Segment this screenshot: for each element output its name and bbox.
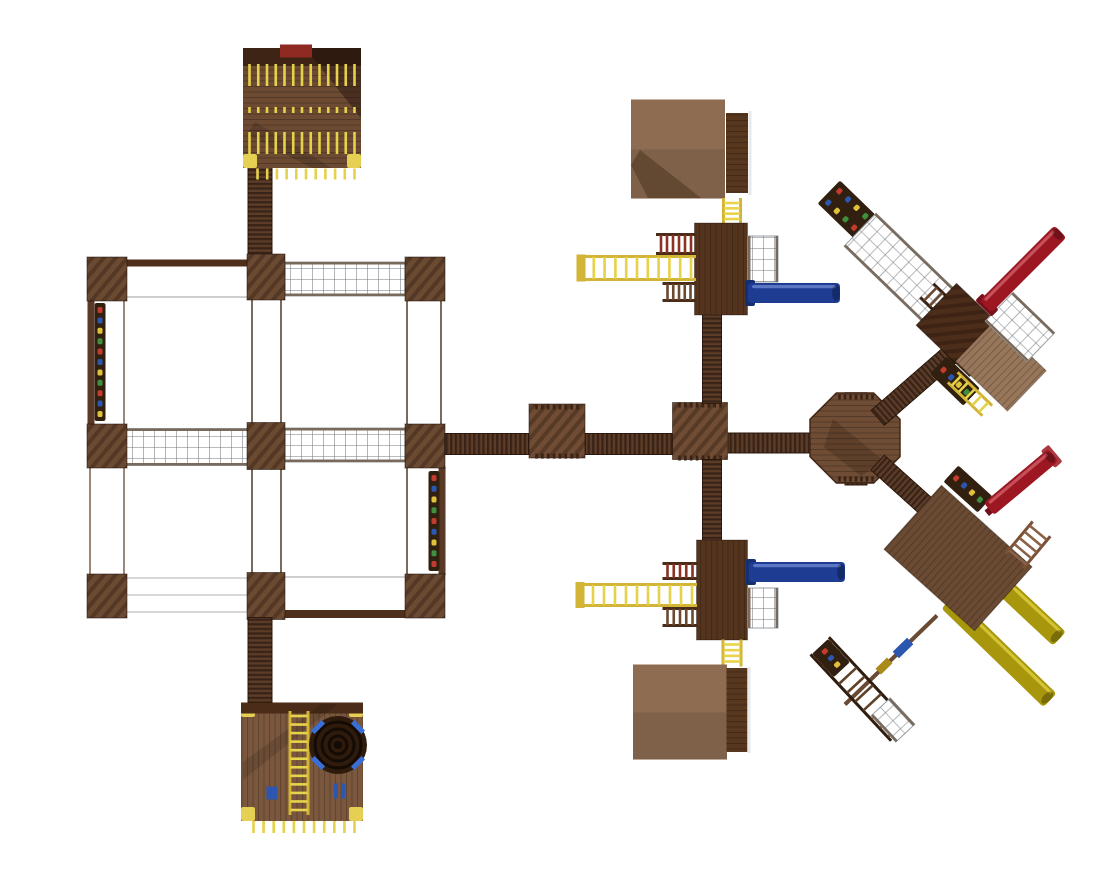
tower-platform-south <box>697 540 748 640</box>
climbwall-rail-west <box>88 298 95 426</box>
climbwall-rail-east <box>439 467 446 575</box>
frame-platform-east <box>405 424 445 468</box>
frame-beam-north-left <box>126 260 248 267</box>
bridge-platform-west <box>529 404 585 458</box>
picnic-deck-south-tone <box>633 713 727 760</box>
frame-rope-east-b <box>440 299 442 425</box>
frame-beam-south-right <box>285 610 405 618</box>
cargo-net-north <box>748 236 778 282</box>
frame-rope-east-lower <box>406 467 408 575</box>
main-bridge-east <box>728 433 814 453</box>
frame-rope-south-left-1 <box>127 577 248 579</box>
monkeybar-south-lower <box>663 607 698 627</box>
net-bridge-west <box>127 429 248 466</box>
climbwall-holds-west <box>95 303 106 421</box>
monkeybar-north-lower <box>663 282 696 302</box>
frame-rope-south-left-2 <box>127 594 248 596</box>
walkway-north <box>248 167 272 263</box>
frame-platform-northwest <box>87 257 127 301</box>
frame-platform-southwest <box>87 574 127 618</box>
main-bridge-middle <box>585 434 673 455</box>
frame-platform-south <box>247 573 285 620</box>
deck-northwest-red-cap <box>280 45 312 58</box>
tower-platform-north <box>695 223 748 315</box>
slat-wall-south <box>727 668 748 752</box>
frame-platform-center <box>247 423 285 470</box>
cargo-net-south <box>748 588 778 628</box>
blue-slide-north <box>745 280 840 306</box>
deck-southwest-top-band <box>241 703 363 714</box>
walkway-tower-north <box>703 315 722 404</box>
frame-rope-east-a <box>406 299 408 425</box>
frame-rope-mid-lower-b <box>280 467 282 575</box>
slat-wall-south-edge <box>748 667 751 753</box>
blue-slide-south <box>746 559 845 585</box>
walkway-south <box>248 618 272 703</box>
frame-rope-north-left <box>126 296 248 298</box>
net-bridge-middle <box>285 428 405 462</box>
monkeybar-south-upper <box>663 562 698 580</box>
frame-platform-west <box>87 424 127 468</box>
yellow-ladder-north-cap <box>577 255 586 282</box>
main-bridge-west <box>445 434 529 455</box>
frame-rope-west-inner <box>123 299 125 425</box>
slat-wall-north-edge <box>749 111 752 195</box>
frame-rope-mid-left <box>251 299 253 425</box>
frame-rope-west-lower-a <box>89 467 91 575</box>
frame-rope-west-lower-b <box>123 467 125 575</box>
bridge-platform-east <box>673 403 728 460</box>
frame-rope-south-right <box>285 576 405 578</box>
deck-southwest-blue-mark-b <box>334 784 338 799</box>
climbwall-holds-east <box>429 471 440 571</box>
deck-southwest-blue-mark-c <box>341 784 345 799</box>
frame-platform-north <box>247 254 285 300</box>
frame-platform-southeast <box>405 574 445 618</box>
frame-rope-south-left-3 <box>127 611 248 613</box>
net-bridge-north <box>285 262 405 296</box>
slat-wall-north <box>726 113 748 193</box>
frame-rope-mid-right <box>280 299 282 425</box>
playground-plan-image <box>0 0 1110 879</box>
frame-rope-mid-lower-a <box>251 467 253 575</box>
deck-southwest-blue-mark-a <box>267 787 278 800</box>
frame-platform-northeast <box>405 257 445 301</box>
walkway-tower-south <box>703 460 722 541</box>
yellow-ladder-south-cap <box>576 582 585 608</box>
